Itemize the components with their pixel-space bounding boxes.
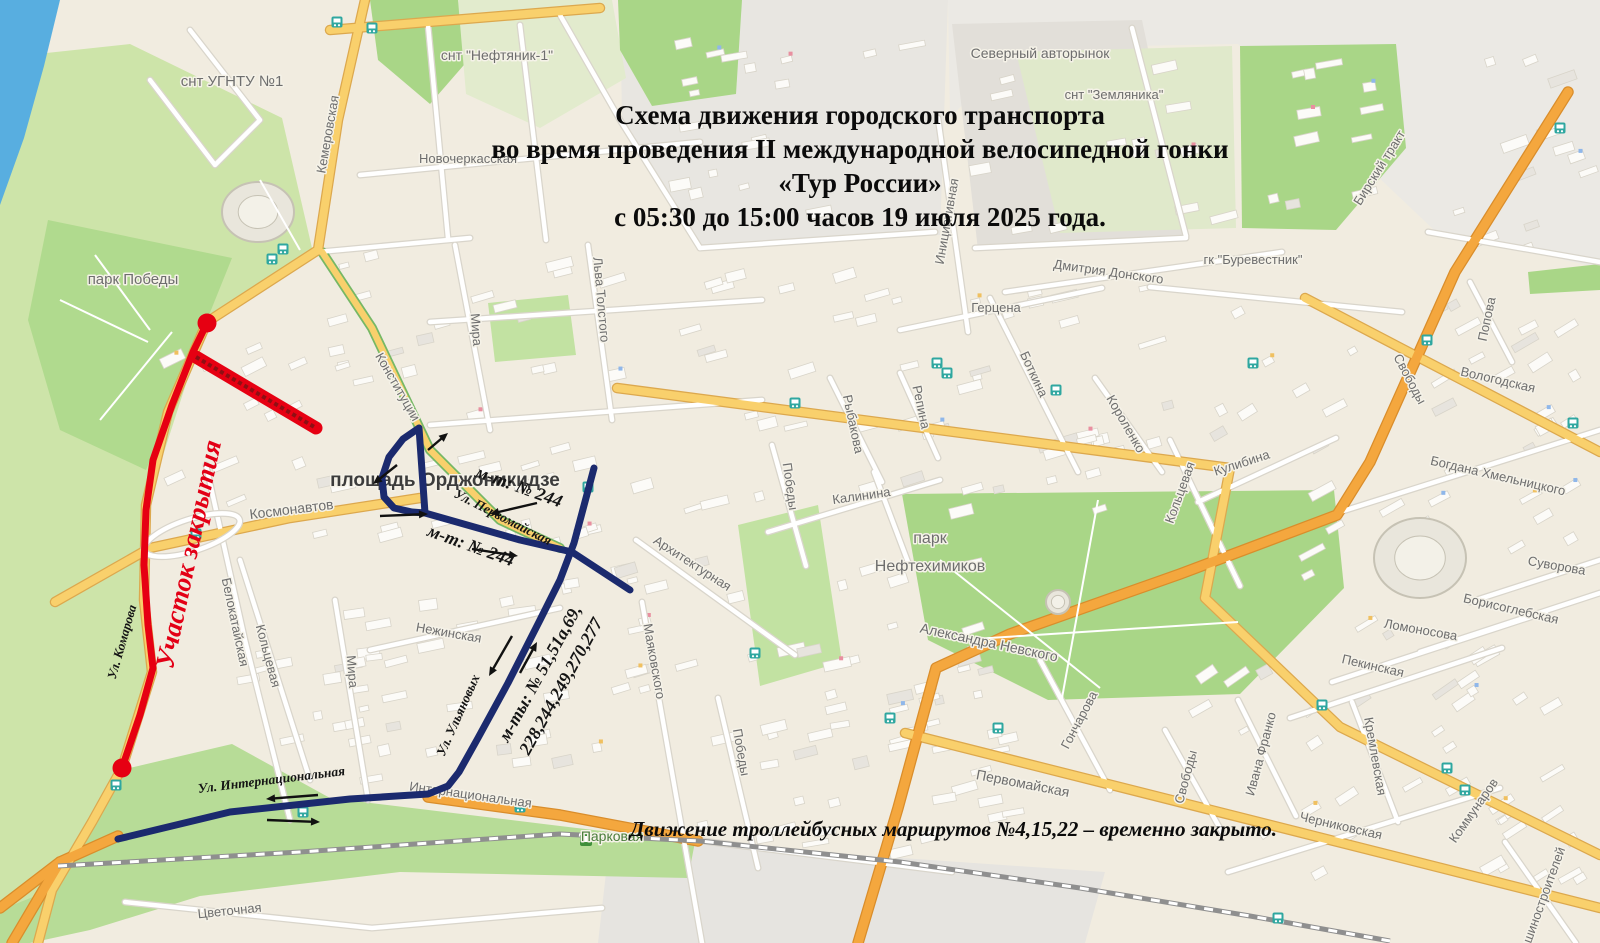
building [1002, 808, 1024, 818]
poi-dot [1371, 79, 1375, 83]
building [264, 410, 277, 422]
building [1447, 299, 1460, 311]
building [744, 63, 756, 73]
poi-dot [717, 45, 721, 49]
building [1540, 697, 1562, 715]
building [631, 478, 654, 494]
building [1239, 726, 1250, 735]
street-label: Кремлевская [1361, 716, 1390, 797]
building [864, 288, 890, 301]
building [793, 796, 804, 806]
building [725, 269, 746, 283]
building [1502, 820, 1526, 839]
street-label: Конституции [372, 350, 423, 424]
poi-dot [479, 407, 483, 411]
bus-stop-icon [1422, 335, 1433, 346]
bus-stop-icon [1051, 385, 1062, 396]
street-label: Вологодская [1459, 364, 1537, 396]
building [542, 362, 557, 374]
city-map: снт УГНТУ №1парк Победыснт "Нефтяник-1"С… [0, 0, 1600, 943]
building [386, 721, 401, 732]
park-area [1528, 264, 1600, 294]
poi-dot [839, 656, 843, 660]
poi-dot [1547, 405, 1551, 409]
building [1511, 332, 1539, 352]
building [323, 672, 342, 685]
street-label: Нефтехимиков [875, 558, 985, 575]
street-label: Мира [468, 313, 486, 348]
transit-scheme-map: снт УГНТУ №1парк Победыснт "Нефтяник-1"С… [0, 0, 1600, 943]
building [1480, 855, 1507, 876]
building [679, 324, 701, 336]
building [978, 794, 1003, 807]
closure-endpoint [113, 759, 132, 778]
building [760, 759, 779, 769]
building [292, 457, 306, 470]
building [778, 283, 795, 294]
building [1215, 403, 1228, 416]
building [1355, 616, 1378, 633]
building [1059, 316, 1080, 329]
building [1363, 81, 1377, 92]
building [313, 711, 323, 721]
street-label: Ломоносова [1383, 616, 1459, 644]
building [359, 705, 369, 712]
street-label: гк "Буревестник" [1204, 252, 1303, 267]
building [887, 622, 898, 630]
building [788, 362, 816, 379]
building [1563, 532, 1578, 546]
building [241, 357, 267, 377]
building [957, 379, 983, 394]
building [592, 742, 602, 752]
stadium-field [1395, 536, 1446, 580]
building [697, 820, 709, 829]
building [1046, 476, 1057, 485]
bus-stop-icon [267, 254, 278, 265]
building [833, 267, 857, 283]
building [770, 822, 797, 835]
poi-dot [1504, 796, 1508, 800]
poi-dot [1311, 105, 1315, 109]
street-label: Свободы [1171, 748, 1200, 805]
building [744, 411, 758, 420]
building [1513, 692, 1528, 705]
building [814, 826, 837, 837]
building [793, 745, 818, 760]
building [226, 494, 246, 507]
building [377, 744, 391, 757]
street-label: Победы [780, 462, 801, 511]
building [416, 333, 434, 346]
poi-dot [1270, 353, 1274, 357]
building [978, 666, 994, 676]
building [889, 845, 913, 860]
building [855, 313, 877, 326]
bus-stop-icon [1442, 763, 1453, 774]
street-label: Короленко [1103, 392, 1148, 455]
building [833, 312, 854, 323]
building [531, 365, 544, 374]
building [1210, 426, 1228, 442]
bus-stop-icon [1273, 913, 1284, 924]
building [828, 797, 841, 808]
park-area [1240, 44, 1406, 230]
poi-dot [1475, 683, 1479, 687]
building [708, 169, 718, 178]
building [760, 719, 787, 735]
bus-stop-icon [885, 713, 896, 724]
poi-dot [1579, 149, 1583, 153]
building [1189, 699, 1213, 717]
building [401, 364, 417, 378]
building [564, 578, 580, 589]
poi-dot [789, 52, 793, 56]
building [364, 250, 379, 262]
building [327, 314, 348, 327]
building [993, 485, 1005, 494]
street [1165, 730, 1222, 832]
building [1306, 735, 1323, 751]
building [1508, 540, 1525, 554]
closure-endpoint [198, 314, 217, 333]
building [1469, 352, 1485, 364]
building [550, 442, 571, 454]
poi-dot [1573, 478, 1577, 482]
bus-stop-icon [942, 368, 953, 379]
stadium-field [1051, 595, 1064, 608]
bus-stop-icon [367, 23, 378, 34]
bus-stop-icon [750, 648, 761, 659]
building [802, 838, 829, 847]
building [1085, 468, 1101, 479]
bus-stop-icon [1555, 123, 1566, 134]
poi-dot [1441, 491, 1445, 495]
building [1554, 319, 1578, 338]
building [1262, 356, 1275, 367]
building [961, 482, 983, 495]
poi-dot [1313, 801, 1317, 805]
building [471, 290, 494, 303]
building [852, 756, 869, 770]
street-label: Новочеркасская [419, 151, 517, 166]
building [919, 828, 941, 844]
building [1432, 725, 1445, 736]
street-label: снт "Нефтяник-1" [441, 47, 553, 63]
building [1304, 68, 1316, 80]
poi-dot [638, 663, 642, 667]
building [825, 689, 838, 700]
building [1335, 786, 1359, 806]
street-label: Мира [344, 655, 362, 690]
poi-dot [588, 522, 592, 526]
building [700, 495, 729, 510]
building [644, 580, 668, 594]
building [675, 659, 698, 671]
building [627, 577, 638, 585]
building [1568, 369, 1581, 382]
building [727, 591, 745, 604]
bus-stop-icon [1317, 700, 1328, 711]
poi-dot [1088, 427, 1092, 431]
poi-dot [618, 367, 622, 371]
building [808, 728, 833, 742]
building [837, 579, 848, 590]
street-label: Парковая [581, 828, 643, 844]
building [639, 685, 651, 694]
poi-dot [1368, 616, 1372, 620]
building [419, 598, 438, 611]
building [1533, 508, 1553, 524]
poi-dot [940, 418, 944, 422]
building [365, 618, 391, 631]
building [500, 596, 515, 608]
building [384, 655, 408, 667]
building [1528, 352, 1553, 373]
poi-dot [978, 293, 982, 297]
building [784, 421, 808, 431]
building [496, 744, 511, 756]
street-label: парк [913, 530, 947, 547]
building [339, 262, 350, 269]
building [1432, 398, 1457, 416]
bus-stop-icon [1460, 785, 1471, 796]
bus-stop-icon [1568, 418, 1579, 429]
poi-dot [901, 701, 905, 705]
building [892, 297, 902, 305]
poi-dot [1192, 142, 1196, 146]
building [1268, 193, 1279, 204]
building [1237, 403, 1257, 421]
building [1542, 805, 1564, 822]
bus-stop-icon [298, 807, 309, 818]
building [353, 376, 374, 386]
building [382, 691, 408, 703]
building [932, 792, 956, 805]
street-label: Герцена [971, 300, 1021, 315]
bus-stop-icon [111, 780, 122, 791]
bus-stop-icon [993, 723, 1004, 734]
building [343, 608, 365, 620]
direction-arrow [492, 636, 512, 671]
building [1347, 346, 1357, 356]
building [288, 357, 307, 370]
building [1231, 306, 1245, 319]
bus-stop-icon [332, 17, 343, 28]
main-road [1305, 298, 1600, 452]
building [887, 689, 914, 705]
building [825, 702, 847, 715]
bus-stop-icon [1248, 358, 1259, 369]
building [757, 416, 778, 431]
bus-stop-icon [932, 358, 943, 369]
building [1322, 399, 1347, 417]
building [754, 491, 765, 502]
building [1138, 336, 1166, 349]
bus-stop-icon [278, 244, 289, 255]
building [512, 756, 531, 767]
poi-dot [174, 351, 178, 355]
building [1131, 145, 1144, 157]
building [973, 690, 982, 699]
building [313, 529, 328, 538]
building [614, 562, 638, 579]
building [830, 720, 850, 729]
poi-dot [599, 739, 603, 743]
street-label: снт УГНТУ №1 [181, 73, 284, 90]
building [1311, 866, 1328, 881]
building [1540, 764, 1565, 781]
building [552, 754, 573, 768]
building [1428, 491, 1450, 507]
building [1162, 400, 1174, 410]
building [900, 361, 919, 372]
building [328, 345, 344, 357]
building [611, 683, 630, 695]
building [1443, 741, 1457, 753]
street-label: парк Победы [88, 271, 179, 288]
building [246, 342, 263, 354]
building [1432, 679, 1458, 700]
building [164, 470, 186, 486]
building [756, 832, 774, 844]
building [1292, 383, 1310, 398]
bus-stop-icon [790, 398, 801, 409]
street [1150, 287, 1402, 312]
building [1403, 777, 1423, 792]
street-label: снт "Земляника" [1065, 87, 1164, 102]
street-label: Северный авторынок [971, 45, 1111, 61]
